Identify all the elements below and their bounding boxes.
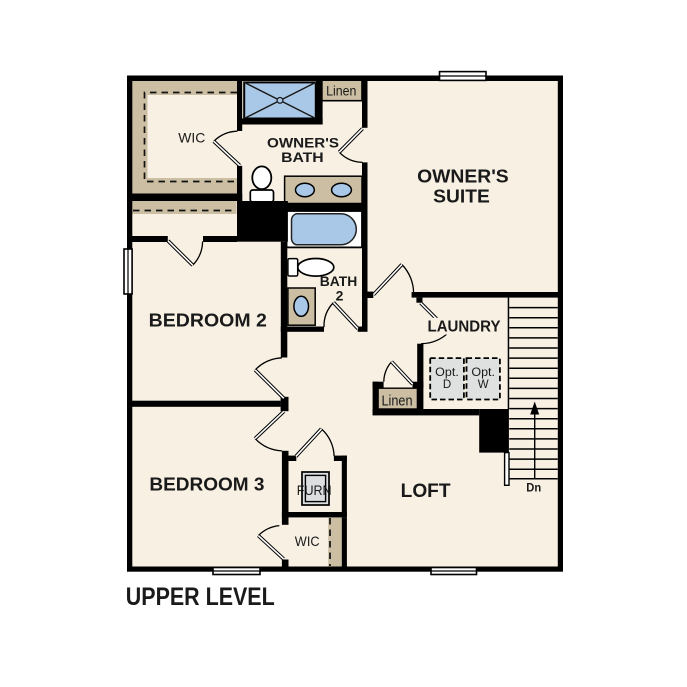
svg-text:Opt.: Opt. [471, 367, 495, 379]
svg-text:SUITE: SUITE [433, 186, 490, 207]
svg-text:WIC: WIC [295, 533, 320, 549]
svg-text:W: W [478, 379, 489, 391]
svg-text:Linen: Linen [326, 84, 356, 99]
svg-text:BATH: BATH [281, 150, 324, 165]
svg-text:WIC: WIC [178, 129, 205, 145]
svg-text:Linen: Linen [381, 394, 412, 410]
svg-text:LAUNDRY: LAUNDRY [428, 319, 502, 336]
svg-text:2: 2 [336, 287, 344, 303]
svg-text:OWNER'S: OWNER'S [417, 166, 509, 187]
svg-text:Opt.: Opt. [435, 367, 459, 379]
svg-text:OWNER'S: OWNER'S [267, 135, 339, 150]
svg-text:LOFT: LOFT [401, 480, 451, 502]
svg-text:UPPER LEVEL: UPPER LEVEL [126, 583, 275, 611]
svg-text:BEDROOM 2: BEDROOM 2 [149, 309, 267, 330]
svg-text:BEDROOM 3: BEDROOM 3 [149, 474, 264, 495]
svg-text:Dn: Dn [526, 480, 541, 494]
svg-text:FURN: FURN [297, 482, 332, 498]
svg-text:D: D [443, 379, 451, 391]
